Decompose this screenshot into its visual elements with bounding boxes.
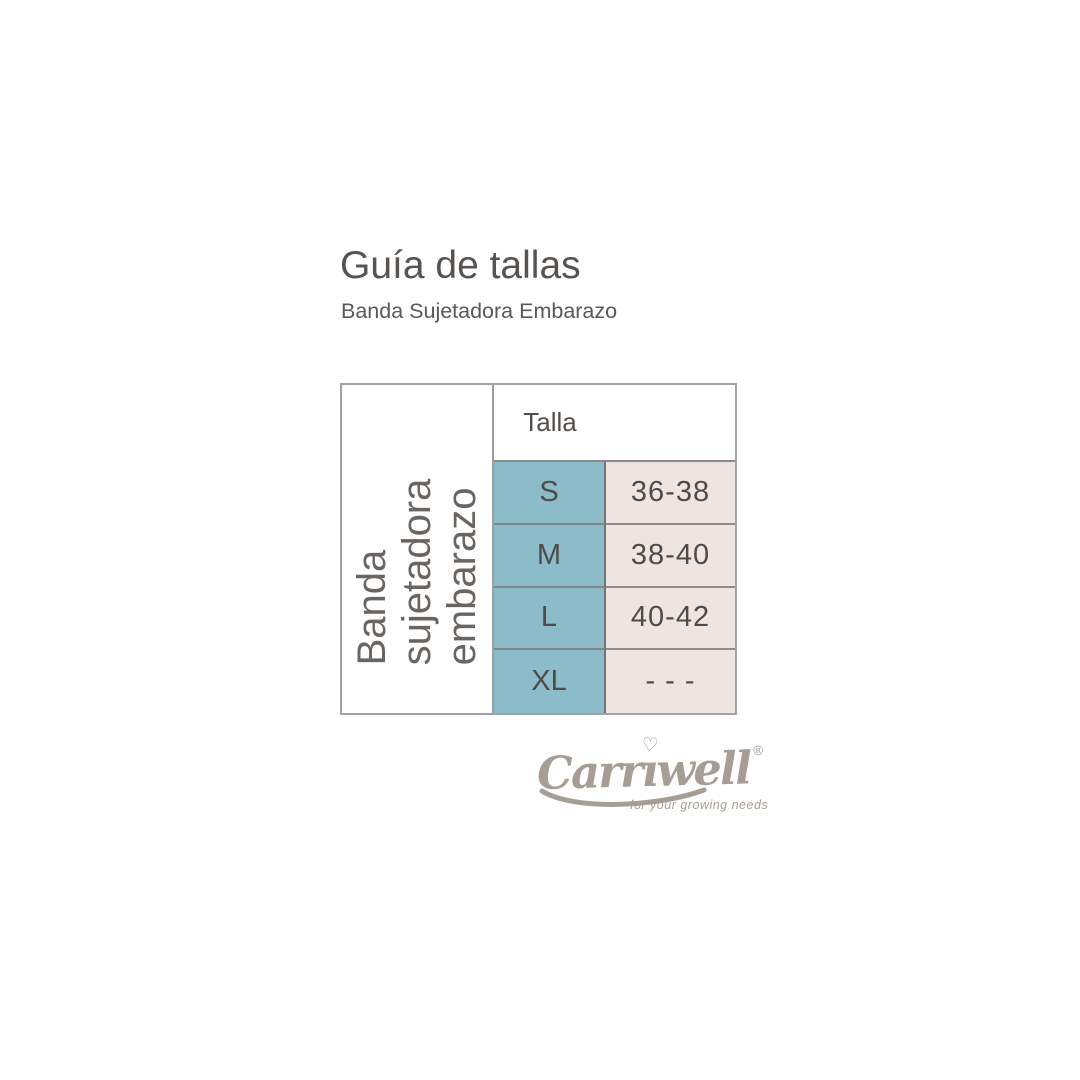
table-header-cell: Talla [494, 385, 735, 462]
registered-trademark-icon: ® [751, 744, 764, 759]
size-cell-m: M [494, 525, 606, 588]
heart-icon: ♡ [641, 733, 660, 757]
vertical-label-line-1: Banda [350, 479, 395, 666]
size-cell-xl: XL [494, 650, 606, 713]
vertical-product-label: Banda sujetadora embarazo [350, 479, 484, 666]
vertical-label-line-3: embarazo [439, 479, 484, 666]
logo-tagline: for your growing needs [630, 798, 768, 812]
range-cell-m: 38-40 [606, 525, 735, 588]
column-header-talla: Talla [494, 407, 606, 438]
size-cell-s: S [494, 462, 606, 525]
size-cell-l: L [494, 588, 606, 651]
brand-logo: Carr♡ıwell® for your growing needs [537, 744, 752, 824]
page-title: Guía de tallas [340, 244, 581, 288]
range-cell-xl: - - - [606, 650, 735, 713]
range-cell-l: 40-42 [606, 588, 735, 651]
vertical-label-line-2: sujetadora [395, 479, 440, 666]
product-label-cell: Banda sujetadora embarazo [342, 385, 494, 713]
size-table: Banda sujetadora embarazo Talla S 36-38 … [340, 383, 737, 715]
range-cell-s: 36-38 [606, 462, 735, 525]
page-subtitle: Banda Sujetadora Embarazo [341, 299, 617, 324]
size-guide-image: Guía de tallas Banda Sujetadora Embarazo… [0, 0, 1080, 1080]
